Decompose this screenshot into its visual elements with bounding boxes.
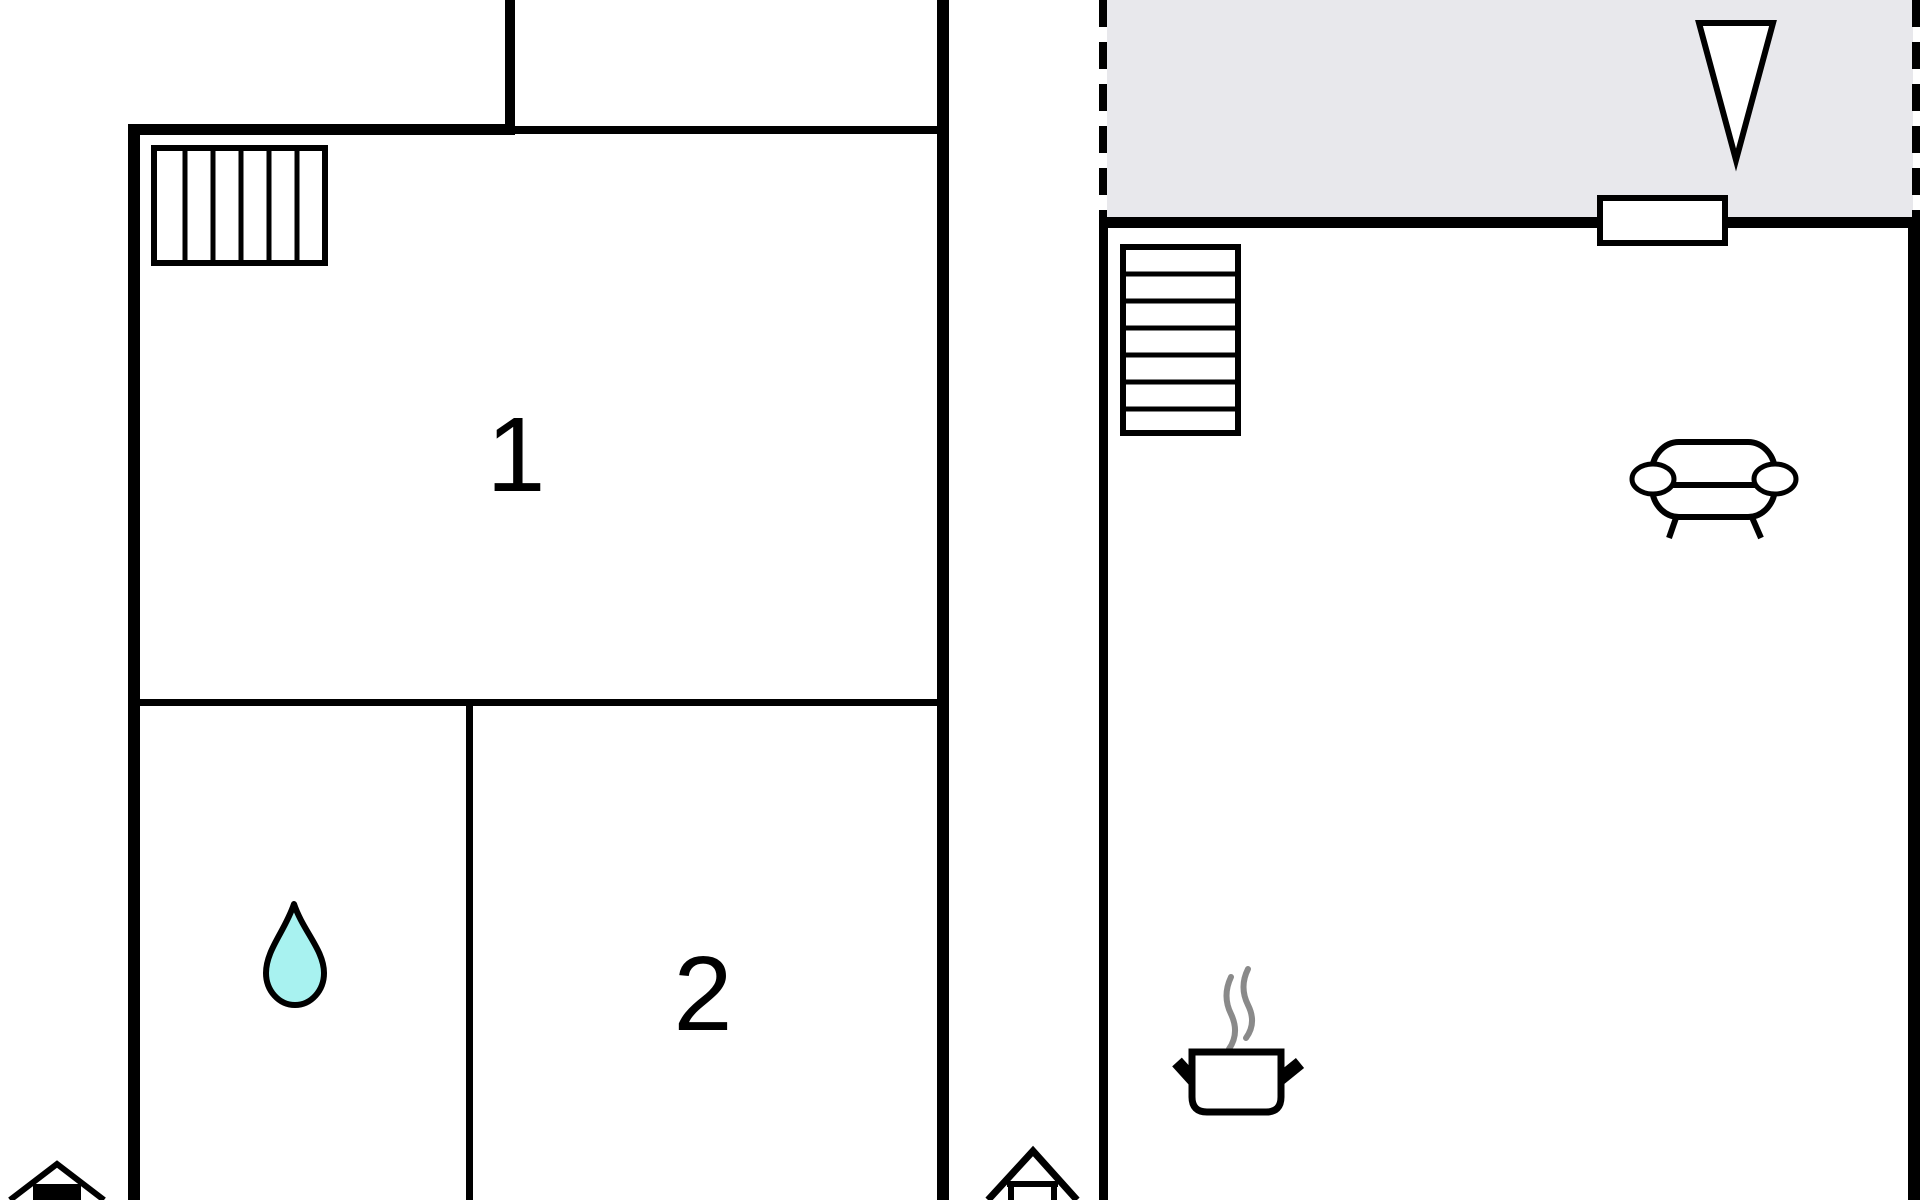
right-unit-east-wall [1908, 217, 1920, 1200]
left-unit-stub-wall [505, 0, 515, 135]
entrance-house-icon [10, 1164, 104, 1200]
cooking-pot-icon [1177, 1052, 1300, 1112]
room-1-label: 1 [487, 396, 546, 514]
entrance-house-icon [988, 1151, 1077, 1200]
left-unit-inner-north-wall [515, 126, 939, 134]
right-unit-west-wall [1099, 217, 1108, 1200]
right-unit-north-wall-left [1099, 217, 1600, 228]
right-unit-north-wall-right [1725, 217, 1920, 228]
left-unit-west-wall [128, 124, 140, 1200]
floor-plan-canvas: 1 2 [0, 0, 1920, 1200]
stairs-icon [1123, 247, 1238, 433]
left-unit-east-wall [937, 0, 949, 1200]
left-unit-mid-wall [140, 699, 937, 706]
sofa-icon [1632, 442, 1796, 538]
door-icon [1600, 198, 1725, 243]
terrace-area [1107, 0, 1913, 217]
floor-plan: 1 2 [0, 0, 1920, 1200]
water-drop-icon [266, 904, 324, 1005]
left-unit-north-wall [128, 124, 515, 135]
left-unit-room-divider-wall [466, 706, 473, 1200]
room-2-label: 2 [674, 935, 733, 1053]
window-hatch-icon [154, 148, 325, 263]
steam-icon [1227, 969, 1253, 1049]
